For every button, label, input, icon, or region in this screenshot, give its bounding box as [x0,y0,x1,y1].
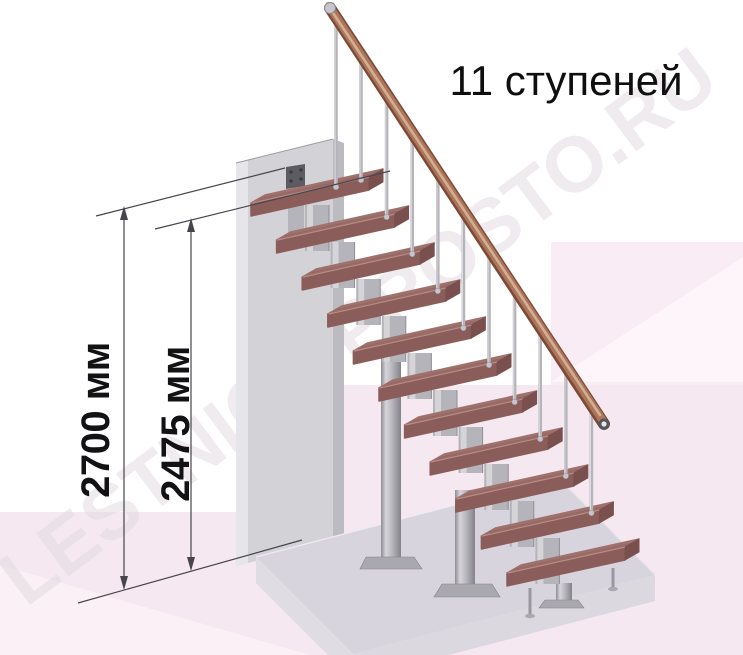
mount-hole [299,168,302,171]
baluster-ball-mount [512,399,518,405]
baluster-ball-mount [589,510,595,516]
dimension-label-2700: 2700 мм [74,342,118,498]
wall-side-face [333,139,344,541]
baluster-ball-mount [384,214,390,220]
baluster-ball-mount [435,288,441,294]
mount-hole [299,177,302,180]
scene: LESTNICY-PROSTO.RU [0,0,743,655]
baluster-ball-mount [537,436,543,442]
staircase-diagram: LESTNICY-PROSTO.RU [0,0,743,655]
column-b-base-plate [434,584,500,597]
dimension-label-2475: 2475 мм [154,346,198,502]
baluster-ball-mount [563,473,569,479]
column-c-base-plate [539,600,584,608]
mount-hole [289,170,292,173]
baluster-ball-mount [409,251,415,257]
leg-foot [525,614,535,618]
handrail-end-cap-center [601,421,606,426]
baluster-ball-mount [486,362,492,368]
wall-left-edge [236,160,248,567]
figure-title: 11 ступеней [449,57,682,104]
support-column-c [556,583,572,601]
leg-foot [608,587,618,591]
column-a-base-plate [360,557,422,569]
handrail-top-cap [325,3,336,14]
wall-mount-plate [286,164,305,189]
baluster-ball-mount [461,325,467,331]
mount-hole [289,179,292,182]
